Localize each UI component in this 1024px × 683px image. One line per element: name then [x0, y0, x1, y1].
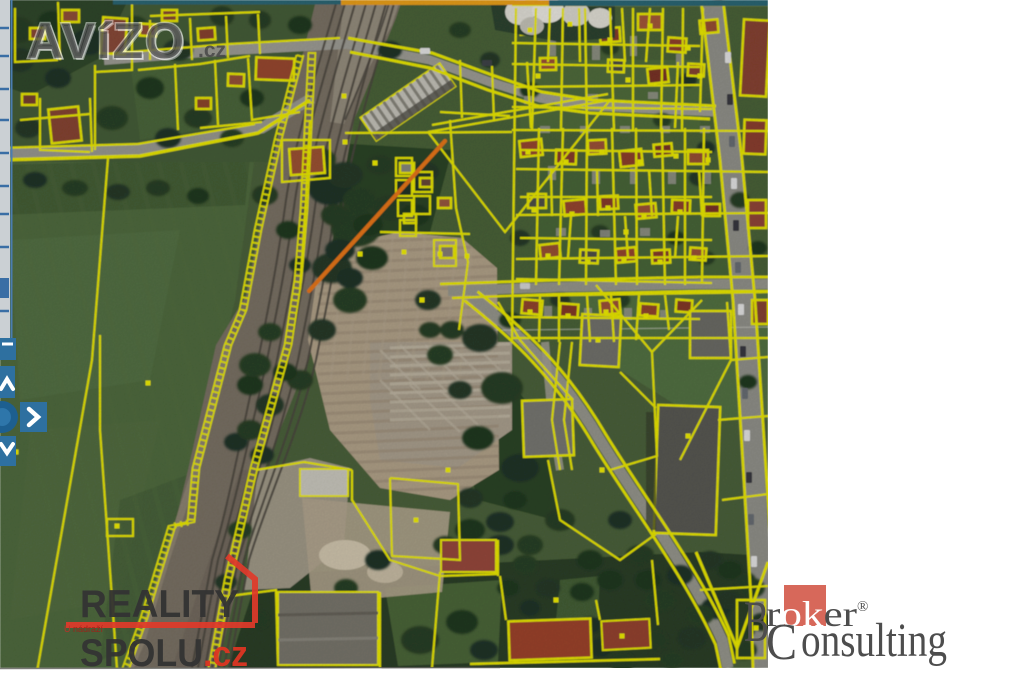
svg-text:.cz: .cz	[198, 39, 226, 62]
svg-text:®: ®	[857, 599, 868, 615]
svg-text:C: C	[766, 614, 797, 671]
svg-text:REALITY: REALITY	[80, 583, 239, 626]
svg-text:AVíZO: AVíZO	[27, 13, 186, 69]
svg-text:.cz: .cz	[203, 633, 248, 674]
svg-text:SPOLU: SPOLU	[80, 632, 203, 675]
svg-text:onsulting: onsulting	[801, 614, 947, 667]
